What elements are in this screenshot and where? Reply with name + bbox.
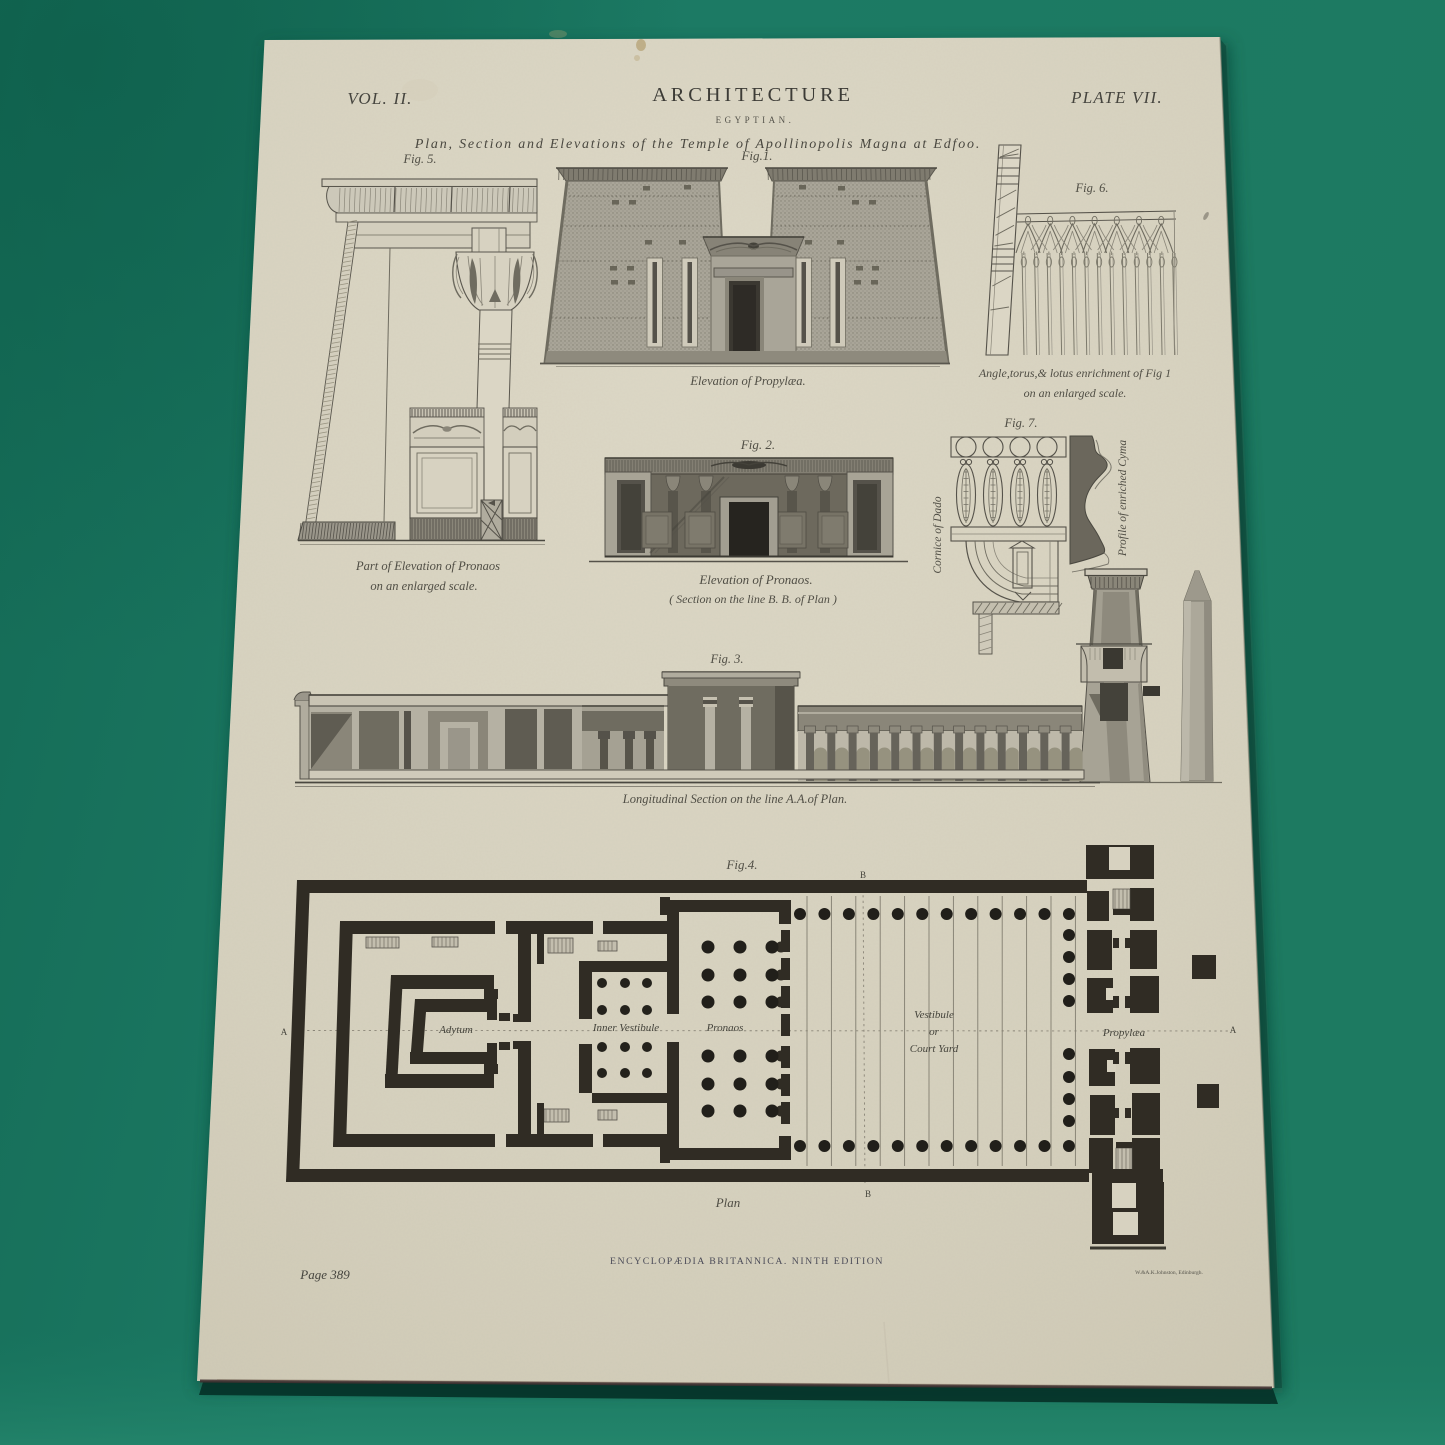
svg-text:A: A — [281, 1027, 288, 1037]
svg-text:Court Yard: Court Yard — [910, 1043, 959, 1055]
svg-text:PLATE VII.: PLATE VII. — [1070, 88, 1163, 107]
svg-text:on an enlarged scale.: on an enlarged scale. — [1024, 386, 1127, 400]
svg-text:Fig. 2.: Fig. 2. — [740, 437, 775, 452]
svg-text:Plan: Plan — [715, 1195, 741, 1210]
svg-text:or: or — [929, 1026, 940, 1038]
svg-text:A: A — [1230, 1025, 1237, 1035]
svg-text:ARCHITECTURE: ARCHITECTURE — [652, 84, 854, 106]
svg-text:Cornice of Dado: Cornice of Dado — [932, 496, 944, 574]
svg-text:Fig.1.: Fig.1. — [740, 148, 772, 163]
svg-text:Propylæa: Propylæa — [1102, 1027, 1146, 1039]
svg-text:Fig. 7.: Fig. 7. — [1004, 416, 1038, 430]
svg-text:Longitudinal Section on the li: Longitudinal Section on the line A.A.of … — [622, 792, 847, 806]
svg-text:B: B — [865, 1189, 871, 1199]
svg-text:Fig. 6.: Fig. 6. — [1075, 181, 1109, 195]
svg-text:Page 389: Page 389 — [299, 1267, 350, 1282]
svg-text:Adytum: Adytum — [438, 1024, 473, 1036]
svg-text:on an enlarged scale.: on an enlarged scale. — [370, 579, 477, 593]
svg-text:Elevation of Pronaos.: Elevation of Pronaos. — [698, 572, 812, 587]
svg-text:ENCYCLOPÆDIA BRITANNICA. NINTH: ENCYCLOPÆDIA BRITANNICA. NINTH EDITION — [610, 1256, 884, 1267]
svg-text:Fig.4.: Fig.4. — [725, 857, 757, 872]
svg-text:Profile of enriched Cyma: Profile of enriched Cyma — [1117, 440, 1129, 557]
svg-text:W.&A.K.Johnston, Edinburgh.: W.&A.K.Johnston, Edinburgh. — [1135, 1270, 1203, 1276]
svg-text:Elevation of Propylæa.: Elevation of Propylæa. — [689, 374, 805, 388]
svg-text:Vestibule: Vestibule — [914, 1009, 954, 1021]
svg-text:Inner Vestibule: Inner Vestibule — [592, 1022, 659, 1034]
svg-text:VOL. II.: VOL. II. — [347, 89, 412, 108]
svg-text:Pronaos: Pronaos — [706, 1022, 744, 1034]
svg-text:( Section on the line B. B. of: ( Section on the line B. B. of Plan ) — [669, 592, 837, 606]
svg-text:Fig. 5.: Fig. 5. — [403, 152, 437, 166]
svg-text:Fig. 3.: Fig. 3. — [710, 652, 744, 666]
svg-text:EGYPTIAN.: EGYPTIAN. — [716, 115, 795, 125]
svg-text:B: B — [860, 870, 866, 880]
svg-text:Part of Elevation of Pronaos: Part of Elevation of Pronaos — [355, 559, 500, 573]
svg-text:Angle,torus,& lotus enrichment: Angle,torus,& lotus enrichment of Fig 1 — [978, 366, 1171, 380]
svg-text:Plan, Section and Elevations o: Plan, Section and Elevations of the Temp… — [414, 137, 981, 152]
